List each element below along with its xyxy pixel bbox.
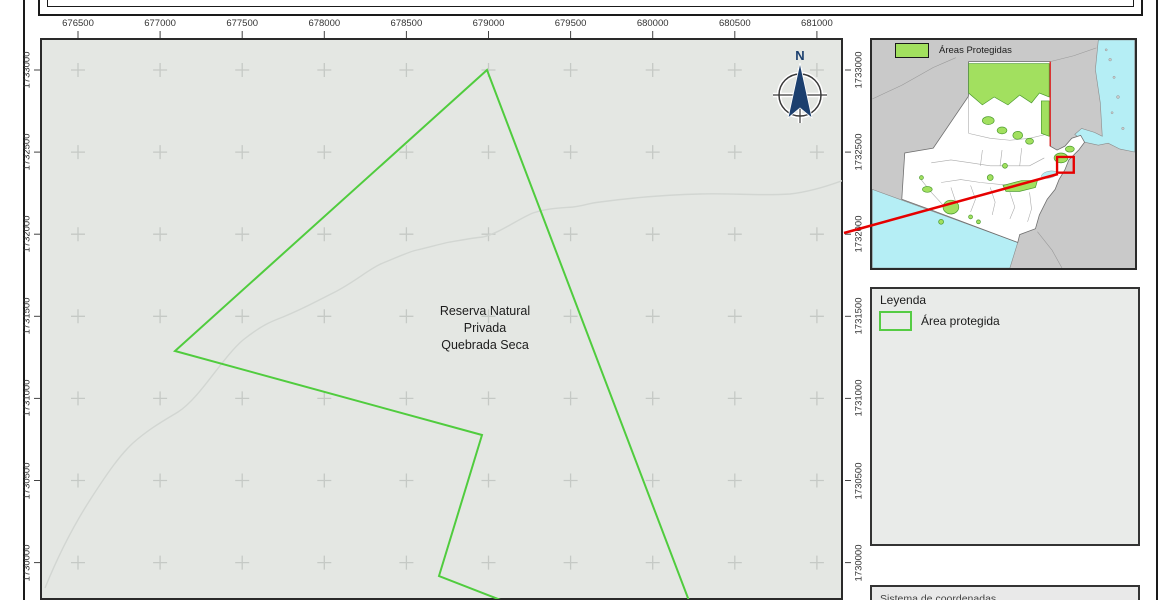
coordinate-system-text: Sistema de coordenadas — [880, 593, 996, 600]
x-axis-tick-label: 680000 — [637, 18, 669, 29]
legend-panel: Leyenda Área protegida — [870, 287, 1140, 546]
legend-item-protected-area: Área protegida — [879, 311, 1000, 331]
info-panel: Sistema de coordenadas — [870, 585, 1140, 600]
inset-geography — [872, 40, 1135, 268]
y-axis-tick-label-left: 1731000 — [22, 380, 33, 417]
legend-item-label: Área protegida — [921, 314, 1000, 328]
map-layout-page: 6765006770006775006780006785006790006795… — [0, 0, 1170, 600]
inset-map: Áreas Protegidas — [870, 38, 1137, 270]
x-axis-tick-label: 676500 — [62, 18, 94, 29]
y-axis-tick-label-right: 1731000 — [854, 380, 865, 417]
title-box — [38, 0, 1143, 16]
y-axis-tick-label-right: 1732500 — [854, 134, 865, 171]
legend-title: Leyenda — [880, 293, 926, 307]
inset-legend-label: Áreas Protegidas — [939, 45, 1012, 56]
x-axis-tick-label: 679000 — [473, 18, 505, 29]
x-axis-tick-label: 679500 — [555, 18, 587, 29]
x-axis-tick-label: 678500 — [391, 18, 423, 29]
north-arrow: N — [770, 44, 830, 128]
y-axis-tick-label-left: 1732000 — [22, 216, 33, 253]
x-axis-tick-label: 677000 — [144, 18, 176, 29]
protected-areas-swatch — [895, 43, 929, 58]
reserve-name-line3: Quebrada Seca — [385, 337, 585, 354]
y-axis-tick-label-left: 1732500 — [22, 134, 33, 171]
y-axis-tick-label-left: 1730500 — [22, 462, 33, 499]
x-axis-tick-label: 677500 — [226, 18, 258, 29]
y-axis-tick-label-left: 1731500 — [22, 298, 33, 335]
y-axis-tick-label-right: 1733000 — [854, 52, 865, 89]
title-box-inner-frame — [47, 0, 1134, 7]
inset-legend: Áreas Protegidas — [895, 43, 1012, 58]
x-axis-tick-label: 680500 — [719, 18, 751, 29]
y-axis-tick-label-right: 1732000 — [854, 216, 865, 253]
protected-area-outline-swatch — [879, 311, 912, 331]
x-axis-tick-label: 678000 — [308, 18, 340, 29]
y-axis-tick-label-left: 1730000 — [22, 544, 33, 581]
y-axis-tick-label-right: 1730500 — [854, 462, 865, 499]
north-label: N — [795, 48, 804, 63]
y-axis-tick-label-left: 1733000 — [22, 52, 33, 89]
y-axis-tick-label-right: 1731500 — [854, 298, 865, 335]
x-axis-tick-label: 681000 — [801, 18, 833, 29]
reserve-name-label: Reserva Natural Privada Quebrada Seca — [385, 303, 585, 354]
page-border-right — [1156, 0, 1158, 600]
reserve-name-line1: Reserva Natural — [385, 303, 585, 320]
y-axis-tick-label-right: 1730000 — [854, 544, 865, 581]
reserve-name-line2: Privada — [385, 320, 585, 337]
